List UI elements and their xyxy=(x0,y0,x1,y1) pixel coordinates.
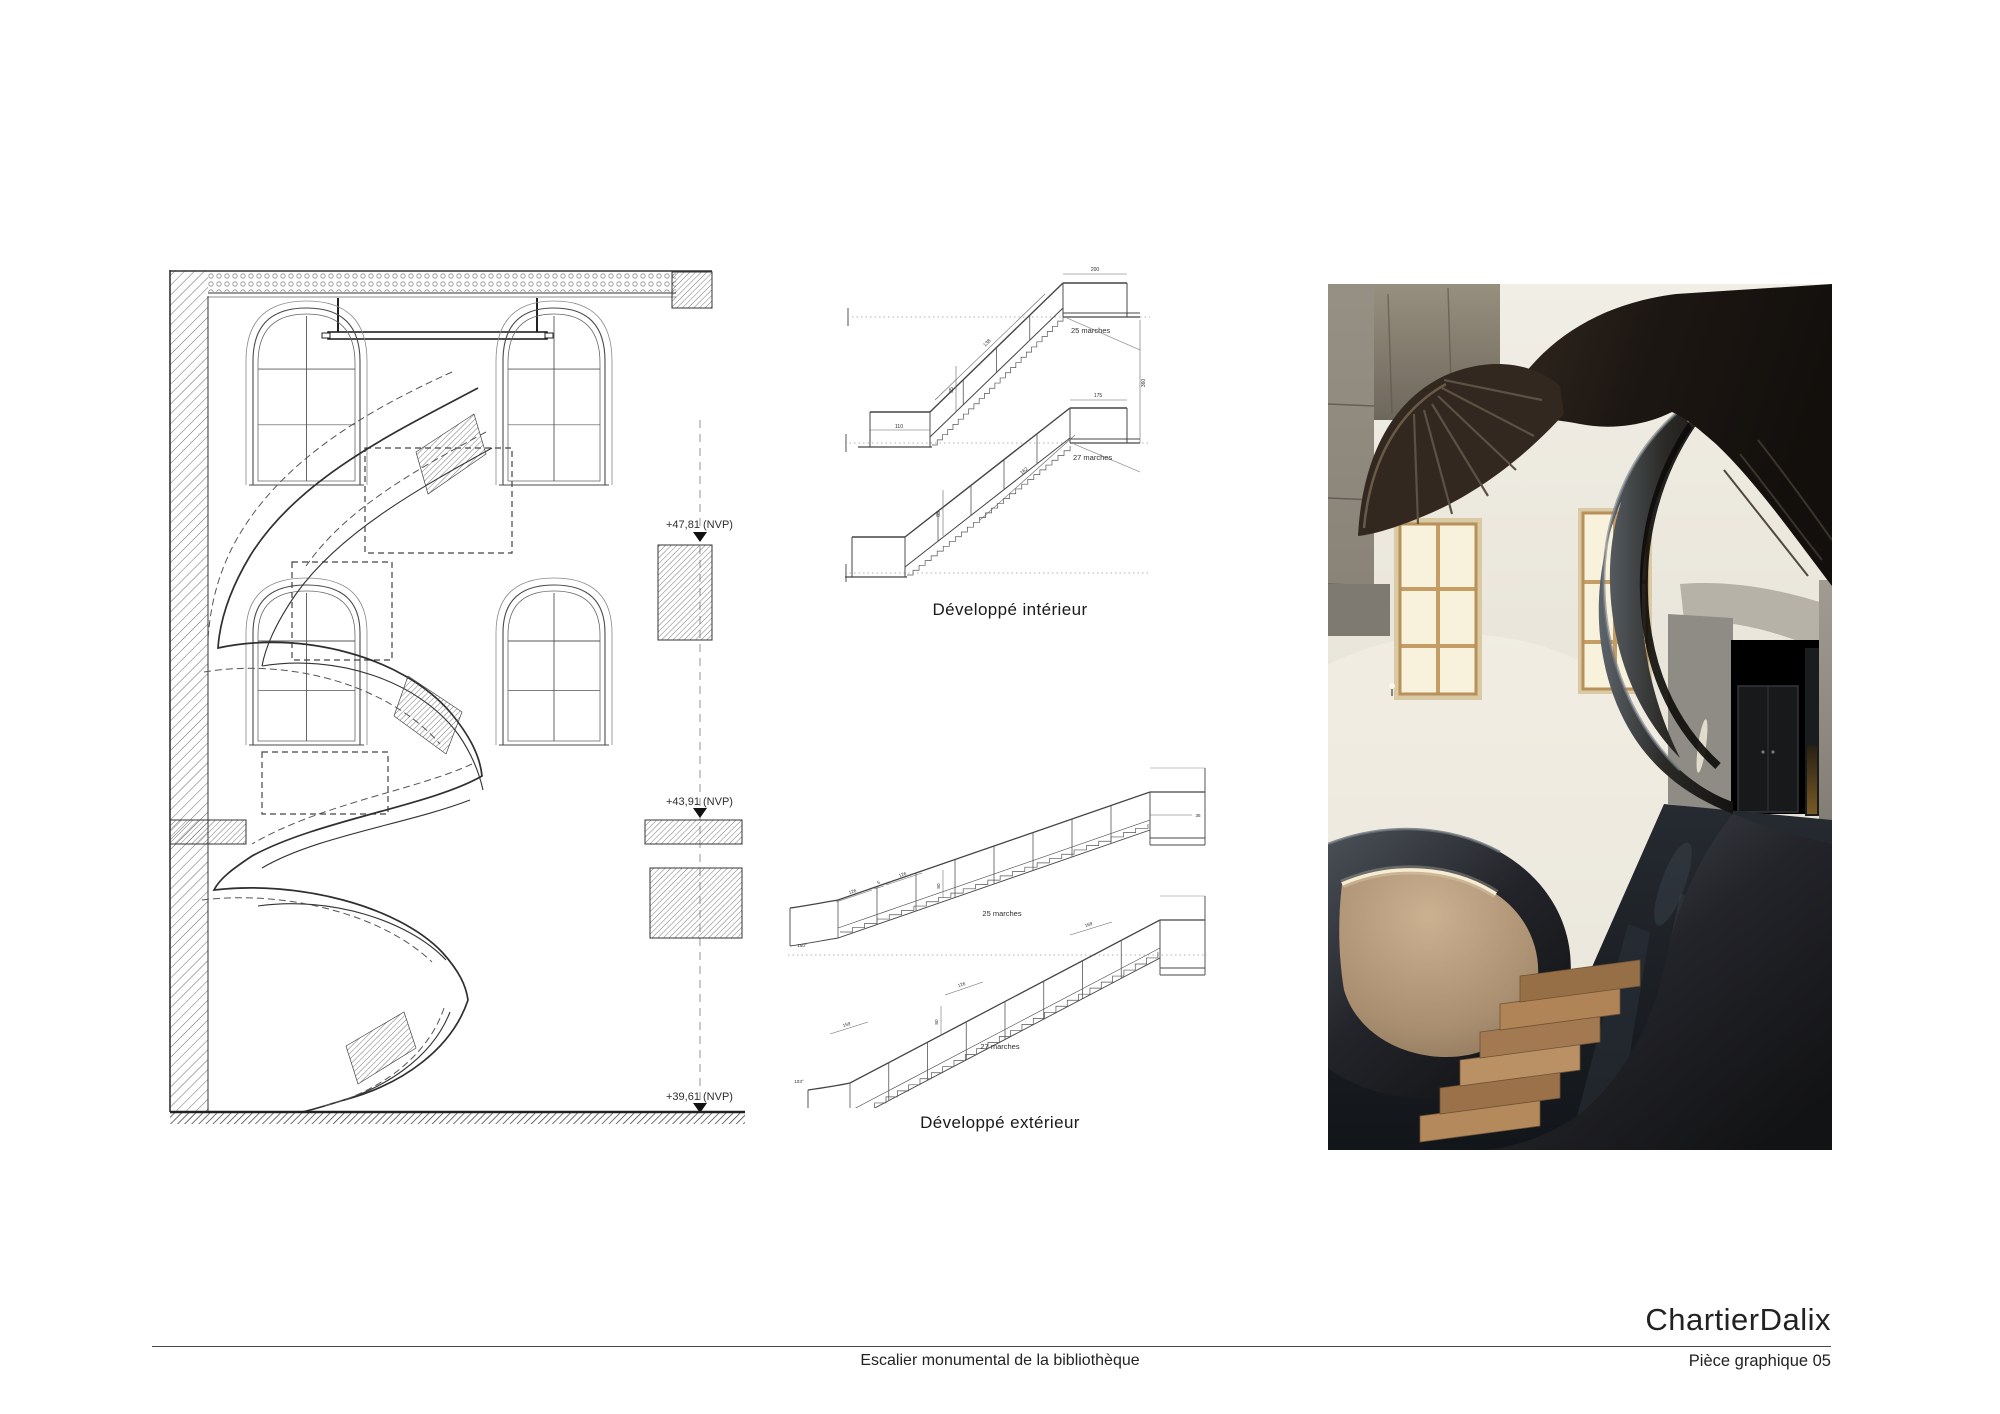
svg-text:80: 80 xyxy=(934,1019,939,1025)
section-dashed-landings xyxy=(262,448,512,814)
svg-text:85: 85 xyxy=(949,387,955,393)
exterior-flight-upper xyxy=(790,768,1205,946)
level-marker-43: +43,91 (NVP) xyxy=(170,796,742,938)
interior-dim-texts: 110 85 138 200 360 129 85 162 175 xyxy=(874,267,1147,592)
svg-text:85: 85 xyxy=(936,511,942,517)
svg-text:+43,91 (NVP): +43,91 (NVP) xyxy=(666,796,733,808)
interior-elevation-drawing: 25 marches 27 marches 110 85 138 200 360… xyxy=(843,256,1177,592)
exterior-elevation-caption: Développé extérieur xyxy=(835,1113,1165,1133)
photo-window-left xyxy=(1394,518,1482,700)
sheet-number: Pièce graphique 05 xyxy=(1431,1352,1831,1371)
presentation-sheet: +47,81 (NVP) +43,91 (NVP) +39,61 (NVP) xyxy=(0,0,2000,1414)
marches-label: 27 marches xyxy=(980,1042,1019,1051)
svg-text:5: 5 xyxy=(877,880,881,886)
section-left-wall xyxy=(170,270,208,1112)
level-marker-47: +47,81 (NVP) xyxy=(658,519,733,640)
marches-label: 25 marches xyxy=(982,909,1021,918)
svg-text:103°: 103° xyxy=(794,1079,804,1084)
wall-stub xyxy=(1328,584,1390,636)
interior-flight-upper xyxy=(858,283,1140,447)
svg-text:162: 162 xyxy=(1019,466,1029,476)
svg-text:+47,81 (NVP): +47,81 (NVP) xyxy=(666,519,733,531)
staircase-photo xyxy=(1328,284,1832,1150)
section-windows xyxy=(246,301,612,745)
marches-label: 27 marches xyxy=(1073,453,1112,462)
section-spiral-ribbon xyxy=(202,372,492,1112)
wall-ticks xyxy=(846,308,848,582)
section-drawing: +47,81 (NVP) +43,91 (NVP) +39,61 (NVP) xyxy=(160,258,755,1136)
interior-dimensions xyxy=(852,274,1140,592)
section-ground xyxy=(170,1112,745,1124)
svg-text:35: 35 xyxy=(1195,813,1201,818)
svg-text:150°: 150° xyxy=(797,943,807,948)
svg-text:169: 169 xyxy=(1084,921,1093,928)
marches-label: 25 marches xyxy=(1071,326,1110,335)
svg-text:110: 110 xyxy=(895,424,903,430)
exterior-dimensions xyxy=(830,815,1192,1034)
level-marker-39: +39,61 (NVP) xyxy=(666,1091,733,1113)
concrete-column xyxy=(1819,580,1832,820)
studio-logotype: ChartierDalix xyxy=(1231,1302,1831,1338)
svg-text:80: 80 xyxy=(936,883,941,889)
level-dotted-lines xyxy=(845,317,1150,573)
svg-text:200: 200 xyxy=(1091,267,1100,273)
section-ceiling-cornice xyxy=(170,271,712,308)
svg-text:+39,61 (NVP): +39,61 (NVP) xyxy=(666,1091,733,1103)
interior-flight-lower xyxy=(845,408,1140,577)
svg-text:126: 126 xyxy=(957,981,966,988)
sheet-title: Escalier monumental de la bibliothèque xyxy=(600,1352,1400,1370)
exterior-elevation-drawing: 25 marches 27 marches 126 5 126 80 150° … xyxy=(783,763,1215,1108)
svg-text:175: 175 xyxy=(1094,393,1103,399)
svg-text:360: 360 xyxy=(1141,379,1147,388)
svg-text:159: 159 xyxy=(842,1021,851,1028)
interior-elevation-caption: Développé intérieur xyxy=(845,600,1175,620)
footer-rule xyxy=(152,1346,1831,1347)
svg-text:138: 138 xyxy=(982,338,992,348)
